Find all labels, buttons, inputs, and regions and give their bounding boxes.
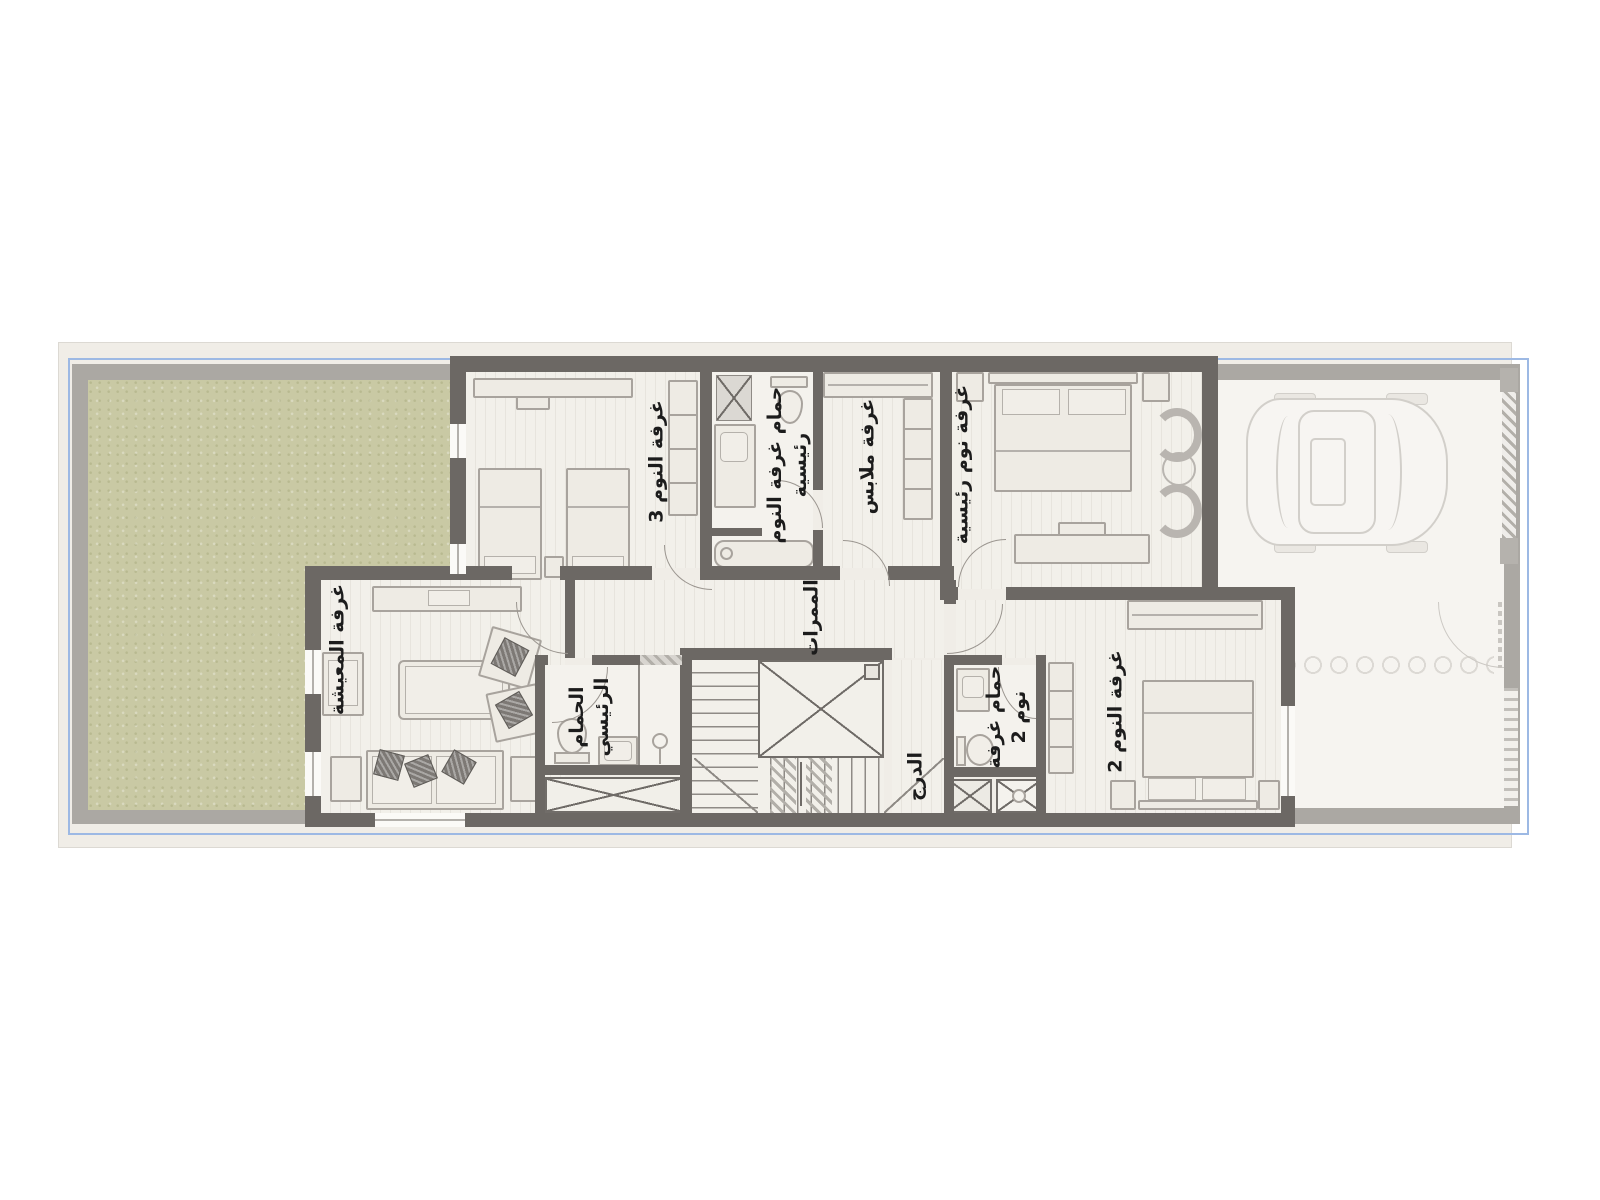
shower-glass — [638, 665, 640, 765]
single-bed-2-fold — [568, 506, 628, 508]
bedroom2-headboard — [1138, 800, 1258, 810]
dressing-wardrobe-top-rod — [828, 384, 928, 386]
bedroom2-bed — [1142, 680, 1254, 778]
bedroom2-wardrobe-rod — [1132, 614, 1258, 616]
car — [1246, 398, 1448, 546]
bath2-shaft — [948, 779, 992, 813]
car-windshield — [1374, 414, 1402, 530]
corridor-floor — [575, 580, 944, 658]
sink-basin — [720, 432, 748, 462]
car-rear-window — [1276, 416, 1300, 528]
pillow — [1068, 389, 1126, 415]
bedroom2-pillow — [1148, 778, 1196, 800]
window — [450, 424, 466, 458]
nightstand-left — [956, 372, 984, 402]
shower-head — [652, 733, 668, 749]
bed-headboard — [988, 372, 1138, 384]
stair-hatch-2 — [806, 758, 832, 813]
bath2-toilet-tank — [956, 736, 966, 766]
bed-fold-line — [996, 450, 1130, 452]
bathtub-faucet — [720, 547, 733, 560]
stair-hatch-1 — [770, 758, 796, 813]
stair-diagonal-right — [884, 758, 944, 813]
tv-box — [1058, 522, 1106, 536]
bedroom2-closet — [1048, 662, 1074, 774]
side-table-left — [330, 756, 362, 802]
vanity-basin — [604, 741, 632, 761]
shower-glass-marker — [640, 655, 682, 665]
stair-handrail — [800, 762, 802, 806]
window — [375, 813, 465, 827]
floor-plan-canvas: غرفة النوم 3 حمام غرفة النوم رئيسية غرفة… — [0, 0, 1600, 1200]
crescent-chair-2 — [1152, 484, 1202, 538]
car-sunroof — [1310, 438, 1346, 506]
window — [1281, 706, 1295, 796]
pillow — [1002, 389, 1060, 415]
bedroom2-bed-fold — [1144, 712, 1252, 714]
bedroom2-pillow — [1202, 778, 1246, 800]
tv-set — [428, 590, 470, 606]
shaft-below-bath — [545, 777, 682, 813]
pedestrian-gate — [1504, 688, 1518, 806]
window — [450, 544, 466, 574]
shaft — [716, 375, 752, 421]
nightstand-right — [1142, 372, 1170, 402]
bath2-basin — [962, 676, 984, 698]
single-bed-1-fold — [480, 506, 540, 508]
garage-door — [1502, 392, 1516, 538]
bedroom2-nightstand-right — [1258, 780, 1280, 810]
desk-chair — [516, 396, 550, 410]
round-table — [1162, 452, 1196, 486]
garage-door-post-top — [1500, 368, 1518, 392]
armchair-left-cushion — [328, 660, 358, 706]
entry-door-leaf — [1498, 602, 1502, 668]
dresser — [1014, 534, 1150, 564]
stair-diagonal-left — [694, 758, 758, 813]
window — [305, 650, 321, 694]
desk — [473, 378, 633, 398]
wardrobe — [668, 380, 698, 516]
dressing-wardrobe-right — [903, 398, 933, 520]
bath2-toilet-bowl — [966, 734, 994, 766]
stair-void-corner — [864, 664, 880, 680]
window — [305, 752, 321, 796]
toilet-tank — [770, 376, 808, 388]
shower-drain — [1012, 789, 1026, 803]
garage-door-post-bottom — [1500, 538, 1518, 564]
bedroom2-nightstand-left — [1110, 780, 1136, 810]
shower-stem — [659, 748, 661, 764]
